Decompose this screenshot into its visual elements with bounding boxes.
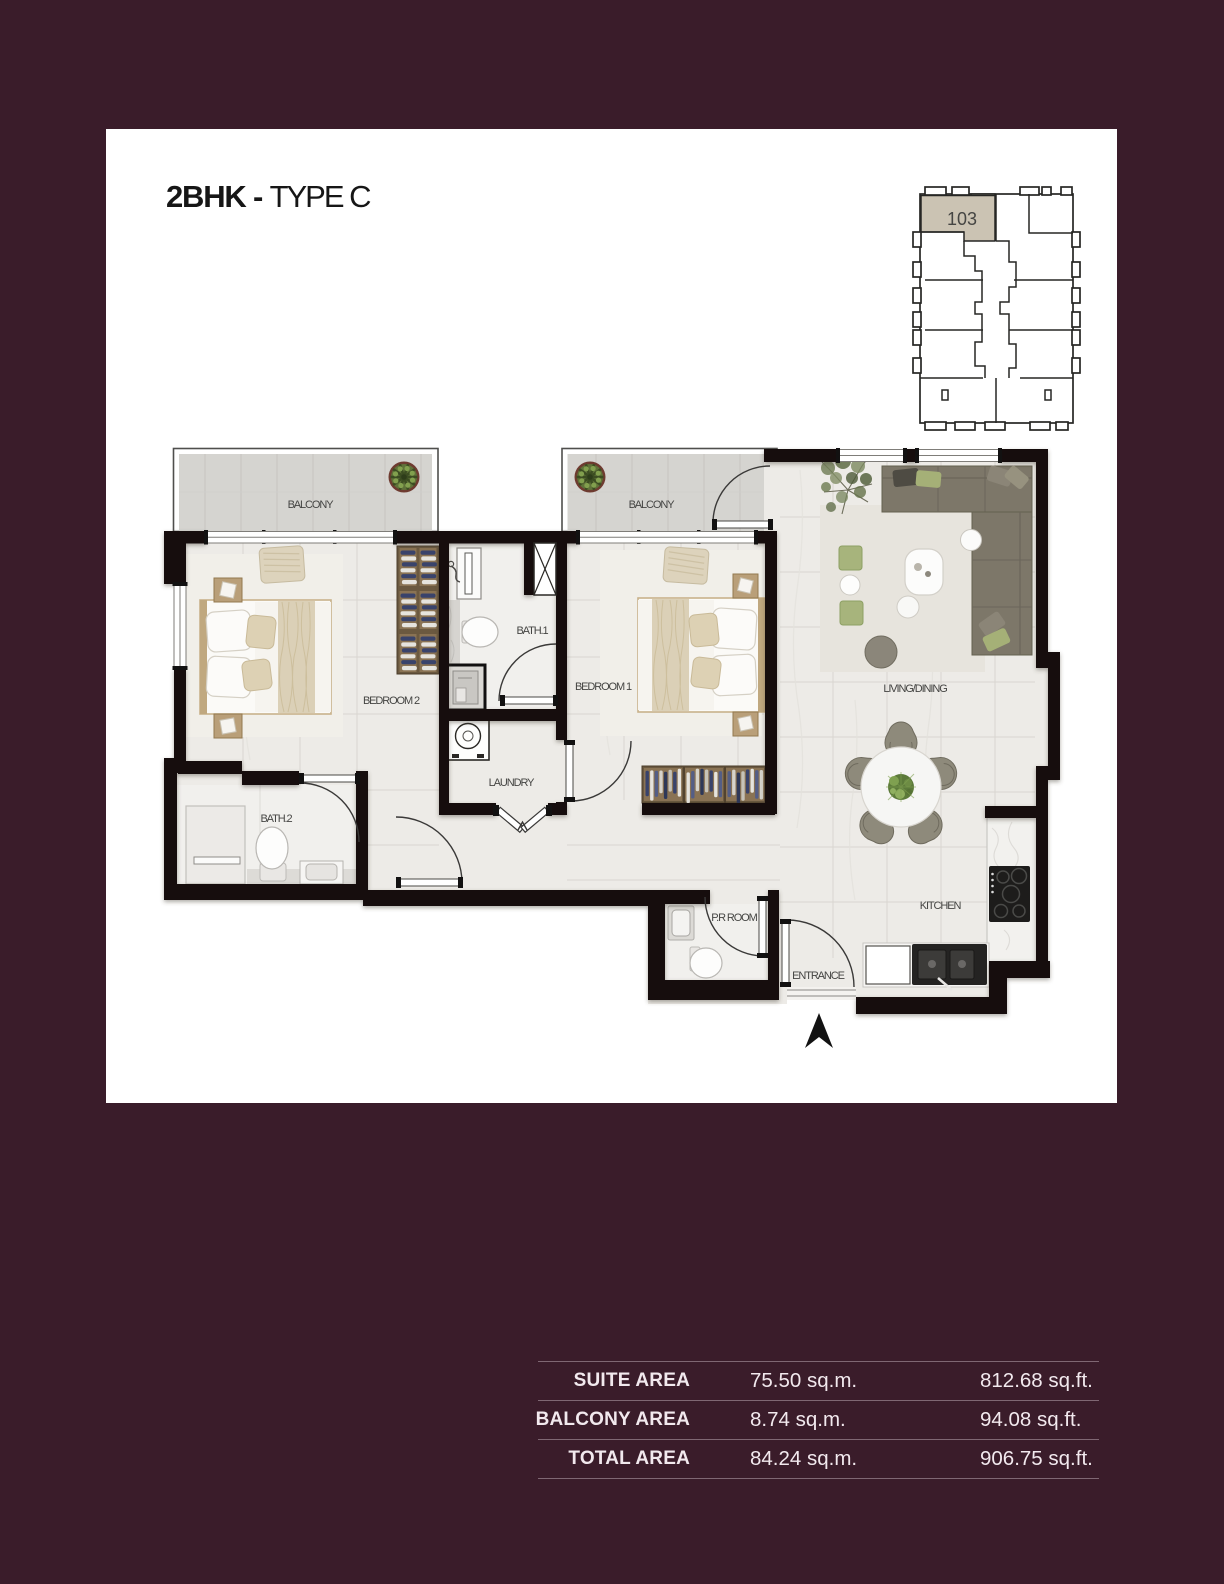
svg-text:BATH.1: BATH.1 [516,625,548,637]
svg-text:ENTRANCE: ENTRANCE [792,970,844,982]
svg-text:LIVING/DINING: LIVING/DINING [883,683,947,695]
svg-text:BALCONY: BALCONY [629,499,676,511]
svg-text:KITCHEN: KITCHEN [920,900,962,912]
svg-text:BEDROOM 1: BEDROOM 1 [575,681,632,693]
svg-text:BALCONY: BALCONY [288,499,335,511]
svg-text:BATH.2: BATH.2 [260,813,292,825]
svg-text:BEDROOM 2: BEDROOM 2 [363,695,420,707]
svg-text:LAUNDRY: LAUNDRY [489,777,535,789]
svg-text:103: 103 [947,209,977,229]
svg-text:P.R ROOM: P.R ROOM [711,912,757,924]
